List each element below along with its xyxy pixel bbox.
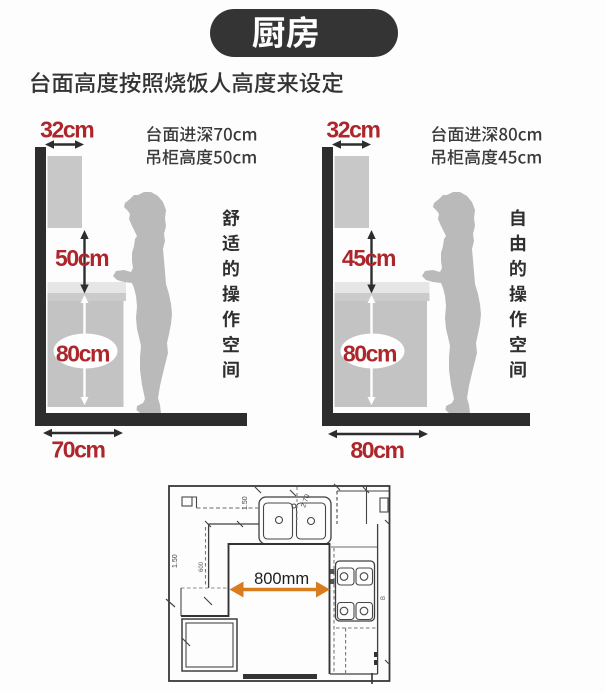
svg-text:32cm: 32cm bbox=[40, 117, 94, 143]
svg-text:800mm: 800mm bbox=[254, 570, 309, 588]
svg-text:B: B bbox=[381, 596, 387, 600]
svg-text:600: 600 bbox=[199, 561, 205, 572]
svg-text:1.50: 1.50 bbox=[242, 496, 249, 510]
svg-text:50cm: 50cm bbox=[55, 245, 109, 271]
svg-text:80cm: 80cm bbox=[343, 340, 397, 366]
svg-text:70cm: 70cm bbox=[51, 437, 105, 463]
svg-text:1.50: 1.50 bbox=[172, 554, 179, 568]
svg-text:80cm: 80cm bbox=[56, 340, 110, 366]
svg-text:45cm: 45cm bbox=[342, 245, 396, 271]
svg-text:80cm: 80cm bbox=[350, 437, 404, 463]
svg-text:32cm: 32cm bbox=[326, 117, 380, 143]
